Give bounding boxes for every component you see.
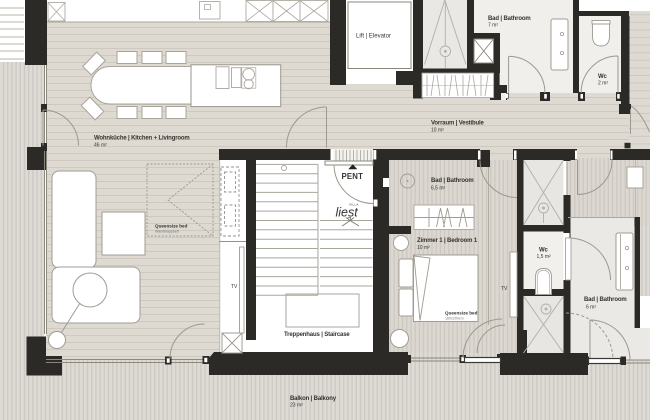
svg-text:Treppenhaus | Staircase: Treppenhaus | Staircase <box>284 332 350 338</box>
svg-text:Bad | Bathroom: Bad | Bathroom <box>431 178 474 184</box>
svg-text:1,5 m²: 1,5 m² <box>537 254 552 260</box>
svg-text:Bad | Bathroom: Bad | Bathroom <box>488 16 531 22</box>
svg-text:160x200cm: 160x200cm <box>445 317 464 321</box>
svg-text:2 m²: 2 m² <box>598 81 608 87</box>
svg-text:10 m²: 10 m² <box>417 245 430 251</box>
svg-text:6 m²: 6 m² <box>586 305 596 311</box>
svg-text:Wohnküche | Kitchen + Livingro: Wohnküche | Kitchen + Livingroom <box>94 136 190 142</box>
svg-text:Bad | Bathroom: Bad | Bathroom <box>584 297 627 303</box>
svg-text:Zimmer 1 | Bedroom 1: Zimmer 1 | Bedroom 1 <box>417 238 478 244</box>
svg-text:Wc: Wc <box>598 74 608 80</box>
svg-text:Vorraum | Vestibule: Vorraum | Vestibule <box>431 121 485 127</box>
svg-text:Balkon | Balkony: Balkon | Balkony <box>290 396 337 402</box>
svg-text:6,5 m²: 6,5 m² <box>431 186 446 192</box>
svg-text:liest: liest <box>336 206 359 220</box>
svg-text:TV: TV <box>501 286 508 292</box>
svg-text:Queensize bed: Queensize bed <box>445 311 478 316</box>
svg-text:Wc: Wc <box>539 248 549 254</box>
svg-text:7 m²: 7 m² <box>488 23 498 29</box>
svg-text:PENT: PENT <box>342 172 364 181</box>
svg-text:Queensize bed: Queensize bed <box>155 224 188 229</box>
svg-text:46 m²: 46 m² <box>94 143 107 149</box>
svg-text:23 m²: 23 m² <box>290 403 303 409</box>
svg-text:10 m²: 10 m² <box>431 128 444 134</box>
svg-text:TV: TV <box>231 284 238 290</box>
svg-text:Lift | Elevator: Lift | Elevator <box>356 34 391 40</box>
svg-text:Wandklappbett: Wandklappbett <box>155 230 179 234</box>
